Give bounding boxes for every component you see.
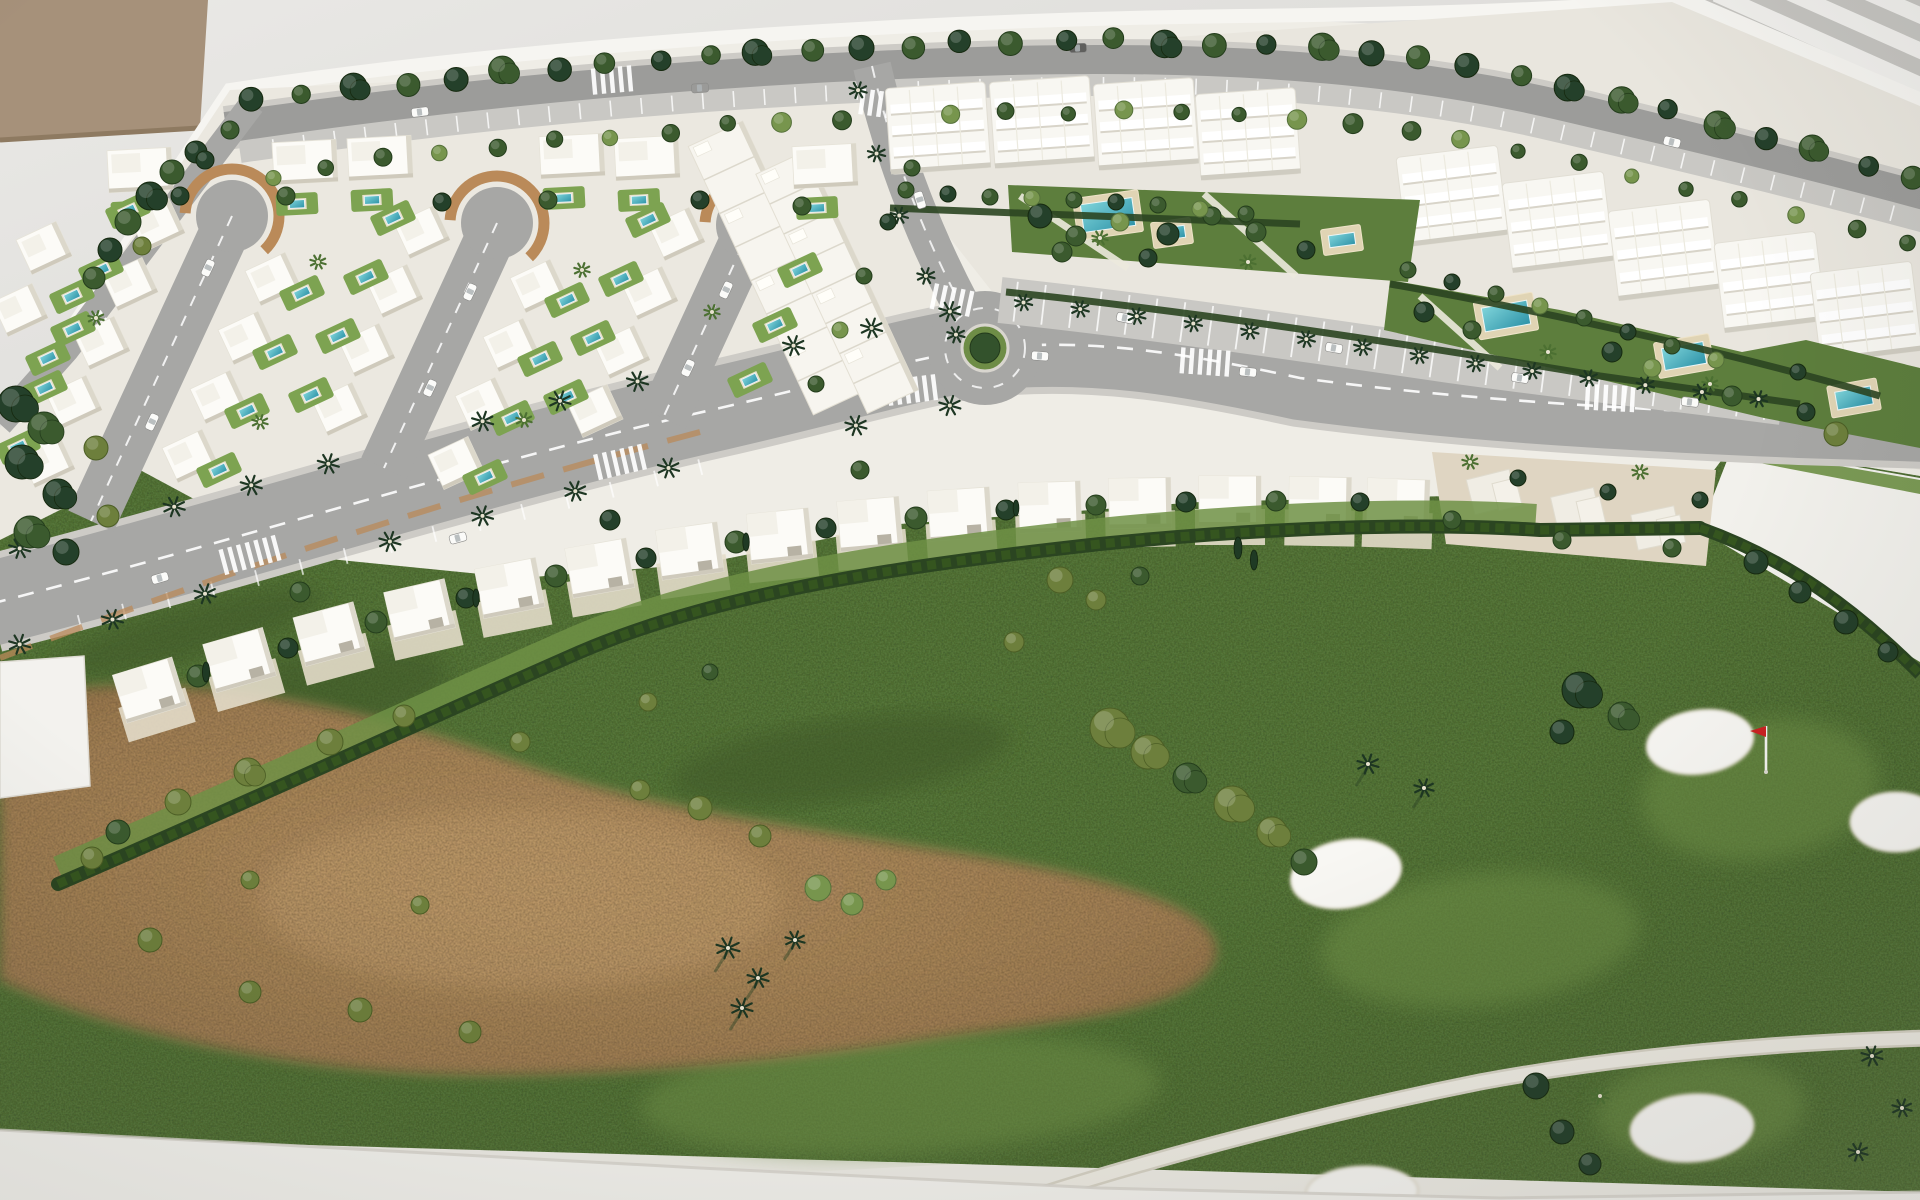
tree	[1643, 359, 1661, 377]
tree	[904, 160, 920, 176]
tree	[772, 113, 792, 133]
villa-garden-pool	[350, 188, 393, 212]
tree	[83, 267, 105, 289]
tree	[1579, 1153, 1601, 1175]
tree	[636, 548, 656, 568]
tree	[545, 565, 567, 587]
tree	[548, 58, 572, 82]
tree	[691, 191, 709, 209]
tree	[1732, 191, 1748, 207]
cypress-tree	[1250, 550, 1257, 570]
tree	[749, 825, 771, 847]
tree	[1400, 262, 1416, 278]
tree	[97, 505, 119, 527]
tree	[1658, 100, 1677, 119]
tree	[1402, 122, 1421, 141]
tree	[1343, 114, 1363, 134]
tree	[1679, 182, 1693, 196]
tree	[1174, 104, 1190, 120]
tree	[165, 789, 191, 815]
cardboard-sheet	[0, 0, 208, 142]
tree	[602, 130, 617, 145]
tree	[1297, 241, 1315, 259]
tree	[1257, 35, 1276, 54]
tree	[1511, 144, 1525, 158]
tree	[600, 510, 620, 530]
tree	[1532, 298, 1548, 314]
tree	[1512, 66, 1532, 86]
cypress-tree	[202, 662, 209, 682]
tree	[1488, 286, 1504, 302]
tree	[278, 638, 298, 658]
tree	[802, 39, 824, 61]
tree	[856, 268, 872, 284]
tree	[1550, 720, 1574, 744]
tree	[1086, 590, 1106, 610]
tree	[1455, 53, 1479, 77]
tree	[239, 87, 263, 111]
tree	[1150, 197, 1166, 213]
tree	[98, 238, 122, 262]
tree	[459, 1021, 481, 1043]
tree	[1900, 235, 1916, 251]
tree	[1176, 492, 1196, 512]
tree	[940, 186, 956, 202]
tree	[1692, 492, 1708, 508]
white-wall-piece	[0, 656, 90, 798]
tree	[1834, 610, 1858, 634]
tree	[1066, 226, 1086, 246]
screenshot-root	[0, 0, 1920, 1200]
tree	[1103, 28, 1124, 49]
tree	[793, 197, 811, 215]
tree	[1406, 46, 1429, 69]
villa-house	[792, 143, 858, 188]
tree	[1238, 206, 1254, 222]
tree	[1755, 127, 1777, 149]
tree	[171, 187, 189, 205]
tree	[1600, 484, 1616, 500]
tree	[1553, 531, 1571, 549]
tree	[720, 116, 736, 132]
tree	[805, 875, 831, 901]
tree	[1359, 41, 1384, 66]
tree	[942, 105, 960, 123]
tree	[998, 32, 1022, 56]
tree	[444, 67, 468, 91]
tree	[816, 518, 836, 538]
tree	[393, 705, 415, 727]
tree	[1523, 1073, 1549, 1099]
tree	[1510, 470, 1526, 486]
tree	[1047, 567, 1073, 593]
tree	[876, 870, 896, 890]
cardboard	[0, 0, 208, 142]
tree	[1789, 581, 1811, 603]
tree	[348, 998, 372, 1022]
tree	[539, 191, 557, 209]
tree	[1202, 34, 1226, 58]
tree	[1024, 190, 1040, 206]
cypress-tree	[1234, 537, 1242, 559]
cypress-tree	[743, 533, 749, 551]
apartment-block	[1093, 78, 1199, 171]
tree	[489, 139, 506, 156]
tree	[133, 237, 151, 255]
tree	[397, 73, 420, 96]
tree	[239, 981, 261, 1003]
apartment-block	[989, 76, 1095, 169]
tree	[702, 664, 718, 680]
tree	[982, 189, 998, 205]
tree	[1797, 403, 1815, 421]
tree	[292, 85, 310, 103]
tree	[833, 111, 852, 130]
tree	[905, 507, 927, 529]
tree	[1192, 201, 1208, 217]
tree	[1246, 222, 1266, 242]
tree	[1157, 223, 1179, 245]
tree	[1824, 422, 1848, 446]
tree	[432, 145, 448, 161]
cypress-tree	[473, 589, 479, 607]
apartment-block	[1714, 231, 1826, 333]
architectural-model-photo	[0, 0, 1920, 1200]
tree	[880, 214, 896, 230]
tree	[851, 461, 869, 479]
model-car	[1681, 396, 1699, 407]
tree	[1066, 192, 1082, 208]
tree	[1452, 130, 1470, 148]
tree	[433, 193, 451, 211]
tree	[1790, 364, 1806, 380]
communal-swimming-pool	[1320, 224, 1363, 255]
tree	[808, 376, 824, 392]
tree	[1086, 495, 1106, 515]
model-car	[1031, 351, 1049, 361]
model-car	[691, 83, 709, 93]
tree	[1571, 154, 1587, 170]
tree	[1108, 194, 1124, 210]
tree	[546, 131, 562, 147]
apartment-block	[1195, 88, 1301, 181]
tree	[84, 436, 108, 460]
tree	[1576, 310, 1592, 326]
tree	[651, 51, 671, 71]
tree	[898, 182, 914, 198]
tree	[1266, 491, 1286, 511]
tree	[997, 103, 1014, 120]
tree	[53, 539, 79, 565]
tree	[1848, 220, 1866, 238]
tree	[318, 160, 334, 176]
tree	[1901, 166, 1920, 189]
model-car	[1239, 367, 1257, 378]
tree	[290, 582, 310, 602]
tree	[1291, 849, 1317, 875]
tree	[1052, 242, 1072, 262]
tree	[1131, 567, 1149, 585]
tree	[1004, 632, 1024, 652]
tree	[639, 693, 657, 711]
tree	[1859, 157, 1879, 177]
tree	[1444, 274, 1460, 290]
tree	[1115, 101, 1133, 119]
tree	[902, 36, 924, 58]
tree	[948, 30, 970, 52]
tree	[196, 151, 214, 169]
tree	[1463, 321, 1481, 339]
tree	[1061, 107, 1075, 121]
tree	[1351, 493, 1369, 511]
tree	[115, 209, 141, 235]
tree	[160, 160, 184, 184]
tree	[594, 53, 615, 74]
apartment-block	[1502, 171, 1614, 273]
tree	[849, 35, 874, 60]
tree	[688, 796, 712, 820]
tree	[1232, 107, 1246, 121]
tree	[277, 187, 295, 205]
tree	[662, 124, 679, 141]
tree	[1602, 342, 1622, 362]
tree	[374, 148, 392, 166]
tree	[1443, 511, 1461, 529]
tree	[81, 847, 103, 869]
tree	[411, 896, 429, 914]
tree	[510, 732, 530, 752]
tree	[365, 611, 387, 633]
tree	[1287, 110, 1306, 129]
tree	[1550, 1120, 1574, 1144]
tree	[832, 322, 848, 338]
tree	[1663, 539, 1681, 557]
tree	[1620, 324, 1636, 340]
tree	[138, 928, 162, 952]
tree	[1708, 352, 1724, 368]
tree	[1028, 204, 1052, 228]
tree	[1664, 338, 1680, 354]
tree	[1414, 302, 1434, 322]
tree	[106, 820, 130, 844]
apartment-block	[1608, 199, 1720, 301]
tree	[1139, 249, 1157, 267]
tree	[1111, 213, 1129, 231]
apartment-block	[885, 82, 991, 175]
tree	[1788, 207, 1805, 224]
tree	[1625, 169, 1639, 183]
tree	[702, 46, 721, 65]
tree	[221, 121, 239, 139]
tree	[841, 893, 863, 915]
tree	[266, 170, 281, 185]
tree	[241, 871, 259, 889]
tree	[1722, 386, 1742, 406]
tree	[1744, 550, 1768, 574]
tree	[630, 780, 650, 800]
tree	[317, 729, 343, 755]
tree	[1878, 642, 1898, 662]
tree	[1057, 30, 1077, 50]
model-car	[411, 106, 429, 117]
cypress-tree	[1013, 500, 1019, 516]
